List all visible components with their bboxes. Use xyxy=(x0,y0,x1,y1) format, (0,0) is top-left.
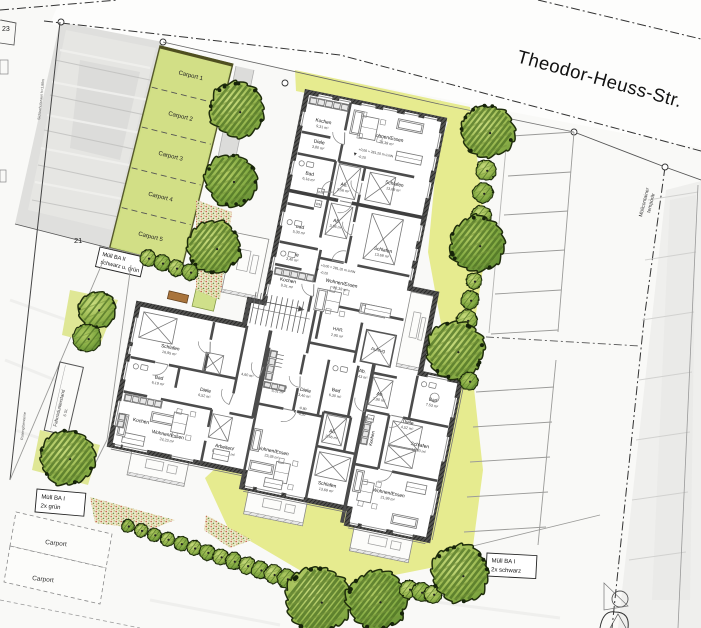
svg-text:21: 21 xyxy=(74,236,82,245)
svg-text:Müll BA I: Müll BA I xyxy=(491,558,515,565)
svg-text:23: 23 xyxy=(2,26,10,33)
